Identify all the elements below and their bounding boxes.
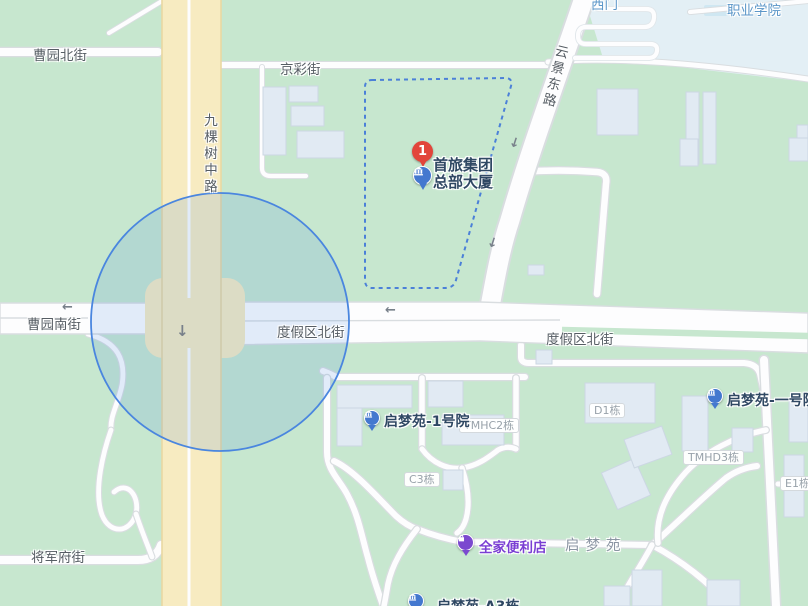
building-badge-e1: E1栋 [780,476,808,491]
poi-label-qimengyuan-yihao[interactable]: 启梦苑-一号院 [727,390,808,410]
place-label-vocational-college[interactable]: 职业学院 [727,0,781,19]
poi-marker-qimengyuan-a3[interactable] [408,593,424,606]
oneway-arrow-left-west: ← [62,300,73,315]
result-marker-1[interactable]: 1 [412,141,433,162]
marker-tail [711,403,719,409]
result-marker-number: 1 [418,144,427,159]
street-label-jiukeshu-middle: 九棵树中路 [199,113,219,196]
shop-icon [457,534,474,551]
poi-marker-qimengyuan-1[interactable] [364,410,380,426]
poi-marker-familymart[interactable] [457,534,474,551]
street-label-caoyuan-north: 曹园北街 [33,44,87,64]
building-badge-c3: C3栋 [404,472,440,487]
marker-tail [368,425,376,431]
street-label-caoyuan-south: 曹园南街 [27,313,81,333]
poi-label-qimengyuan-a3[interactable]: 启梦苑-A3栋 [437,596,519,606]
hq-poi-label[interactable]: 首旅集团总部大厦 [433,157,493,191]
building-badge-d1: D1栋 [589,403,625,418]
poi-marker-qimengyuan-yihao[interactable] [707,388,723,404]
street-label-dujiaqu-north-west: 度假区北街 [277,321,345,341]
hq-poi-marker[interactable] [413,166,432,185]
map-base [0,0,808,606]
poi-label-familymart[interactable]: 全家便利店 [479,536,547,556]
street-label-jingcai: 京彩街 [280,58,321,78]
street-label-jiangjunfu: 将军府街 [31,546,85,566]
oneway-arrow-down-intersection: ↓ [176,322,189,340]
street-label-dujiaqu-north-east: 度假区北街 [546,328,614,348]
building-badge-tmhd3: TMHD3栋 [683,450,744,465]
marker-tail [462,550,470,556]
place-label-west-gate[interactable]: 西门 [591,0,618,13]
marker-tail [419,183,427,190]
poi-label-qimengyuan-1[interactable]: 启梦苑-1号院 [384,411,470,431]
place-label-qimengyuan-area[interactable]: 启梦苑 [565,534,627,555]
building-icon [408,593,424,606]
oneway-arrow-left-east: ← [385,303,396,318]
map-canvas[interactable]: 曹园北街 京彩街 九棵树中路 云景东路 曹园南街 度假区北街 度假区北街 将军府… [0,0,808,606]
